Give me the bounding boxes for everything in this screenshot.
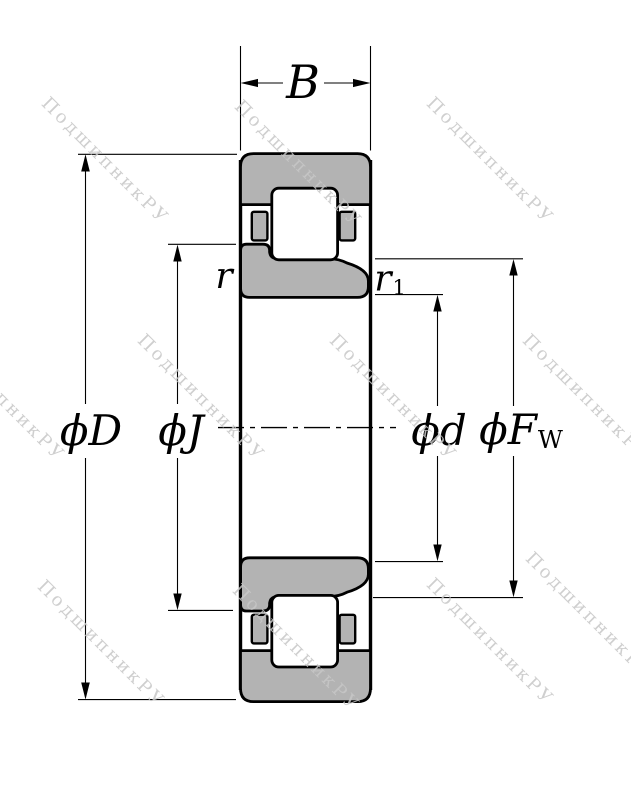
label-chamfer-r1-subscript: 1 [392,275,405,299]
arrowhead-D-down [81,683,90,700]
arrowhead-D-up [81,154,90,171]
cage-bar-left-top [252,212,268,241]
arrowhead-d-up [433,295,441,312]
bearing-drawing-canvas: B ϕD ϕJ ϕd ϕFW r r1 ПодшипникРУ Подшипни… [0,0,631,792]
bearing-cross-section-svg [0,0,631,792]
arrowhead-Fw-up [509,259,517,275]
bearing-top-section [241,154,371,298]
arrowhead-J-down [173,594,181,611]
bearing-bottom-section [241,558,371,702]
arrowhead-B-right [353,79,371,87]
label-outer-diameter: ϕD [60,410,122,452]
arrowhead-B-left [241,79,259,87]
label-rib-diameter: ϕJ [158,410,203,452]
label-chamfer-r1: r1 [374,262,406,299]
cage-bar-right-top [340,212,356,241]
arrowhead-J-up [173,245,181,262]
roller-bottom [272,595,338,667]
label-chamfer-r: r [215,259,232,295]
label-raceway-diameter-main: ϕF [479,405,537,454]
arrowhead-Fw-down [509,581,517,598]
cage-bar-right-bottom [340,615,356,644]
roller-top [272,188,338,260]
label-raceway-diameter: ϕFW [479,409,563,453]
label-chamfer-r1-main: r [374,259,391,300]
label-width-B: B [286,59,320,105]
label-bore-diameter: ϕd [411,410,467,452]
label-raceway-diameter-subscript: W [538,426,563,455]
cage-bar-left-bottom [252,615,268,644]
arrowhead-d-down [433,545,441,562]
